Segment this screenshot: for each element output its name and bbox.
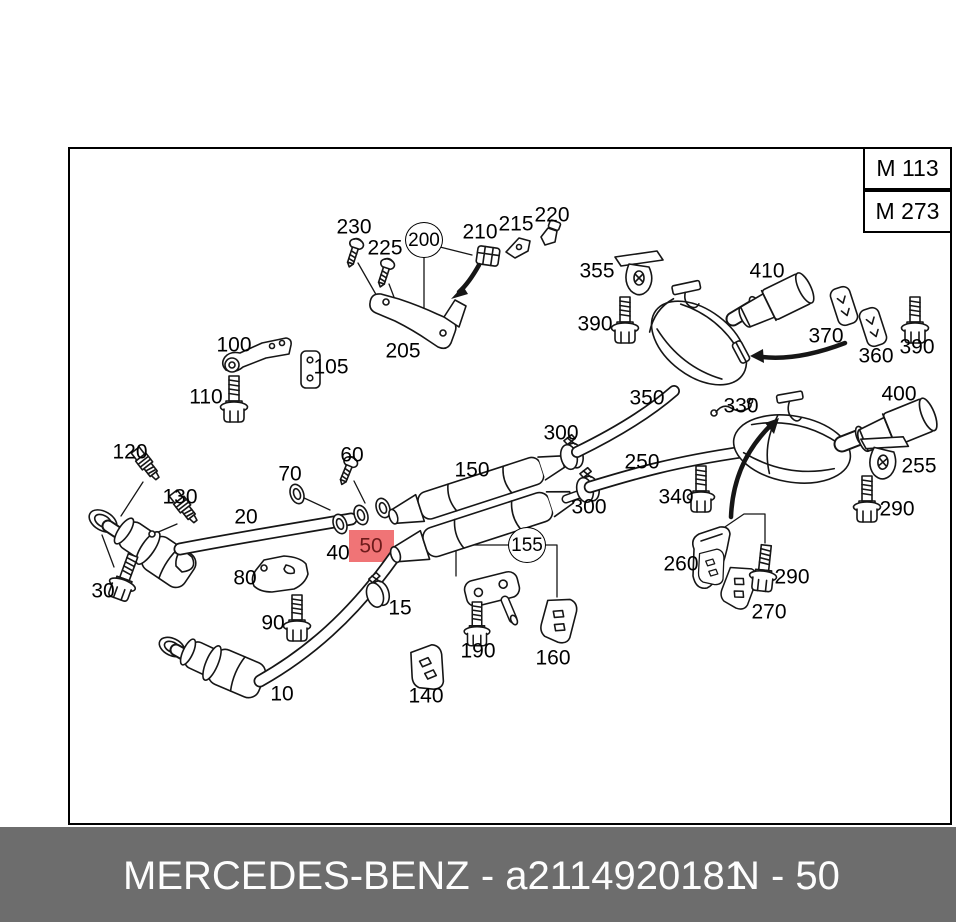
part-label-30[interactable]: 30 <box>91 581 114 602</box>
part-label-100[interactable]: 100 <box>216 335 251 356</box>
part-label-290[interactable]: 290 <box>774 567 809 588</box>
part-label-225[interactable]: 225 <box>367 238 402 259</box>
part-label-15[interactable]: 15 <box>388 598 411 619</box>
part-label-220[interactable]: 220 <box>534 205 569 226</box>
part-label-270[interactable]: 270 <box>751 602 786 623</box>
part-label-255[interactable]: 255 <box>901 456 936 477</box>
engine-code-label: M 113 <box>876 155 938 182</box>
part-label-300[interactable]: 300 <box>571 497 606 518</box>
part-label-10[interactable]: 10 <box>270 684 293 705</box>
part-label-350[interactable]: 350 <box>629 388 664 409</box>
part-label-155[interactable]: 155 <box>508 527 546 563</box>
part-label-250[interactable]: 250 <box>624 452 659 473</box>
part-label-110[interactable]: 110 <box>189 387 222 408</box>
footer-count: N - 50 <box>731 856 840 896</box>
part-label-190[interactable]: 190 <box>460 641 495 662</box>
part-label-390[interactable]: 390 <box>577 314 612 335</box>
part-label-130[interactable]: 130 <box>162 487 197 508</box>
part-label-60[interactable]: 60 <box>340 445 363 466</box>
parts-diagram-page: M 113 M 273 <box>0 0 956 922</box>
part-label-150[interactable]: 150 <box>454 460 489 481</box>
part-label-80[interactable]: 80 <box>233 568 256 589</box>
footer-title: MERCEDES-BENZ - a2114920181 <box>123 856 747 896</box>
engine-code-label: M 273 <box>876 198 940 225</box>
part-label-140[interactable]: 140 <box>408 686 443 707</box>
part-label-70[interactable]: 70 <box>278 464 301 485</box>
engine-code-box-m273: M 273 <box>863 190 952 233</box>
footer-bar: MERCEDES-BENZ - a2114920181 N - 50 <box>0 827 956 922</box>
part-label-330[interactable]: 330 <box>723 396 758 417</box>
part-label-205[interactable]: 205 <box>385 341 420 362</box>
part-label-90[interactable]: 90 <box>261 613 284 634</box>
part-label-120[interactable]: 120 <box>112 442 147 463</box>
part-label-40[interactable]: 40 <box>326 543 349 564</box>
part-label-410[interactable]: 410 <box>749 261 784 282</box>
engine-code-box-m113: M 113 <box>863 147 952 190</box>
part-label-290[interactable]: 290 <box>879 499 914 520</box>
part-label-390[interactable]: 390 <box>899 337 934 358</box>
part-label-20[interactable]: 20 <box>234 507 257 528</box>
part-label-260[interactable]: 260 <box>663 554 698 575</box>
part-label-400[interactable]: 400 <box>881 384 916 405</box>
part-label-105[interactable]: 105 <box>313 357 348 378</box>
part-label-215[interactable]: 215 <box>498 214 533 235</box>
part-label-355[interactable]: 355 <box>579 261 614 282</box>
part-label-160[interactable]: 160 <box>535 648 570 669</box>
part-label-300[interactable]: 300 <box>543 423 578 444</box>
part-label-370[interactable]: 370 <box>808 326 843 347</box>
part-label-230[interactable]: 230 <box>336 217 371 238</box>
part-label-200[interactable]: 200 <box>405 222 443 258</box>
part-label-50[interactable]: 50 <box>359 536 382 557</box>
part-labels-layer: 2302252002102152202051001051101201302070… <box>0 0 956 922</box>
part-label-210[interactable]: 210 <box>462 222 497 243</box>
part-label-360[interactable]: 360 <box>858 346 893 367</box>
part-label-340[interactable]: 340 <box>658 487 693 508</box>
